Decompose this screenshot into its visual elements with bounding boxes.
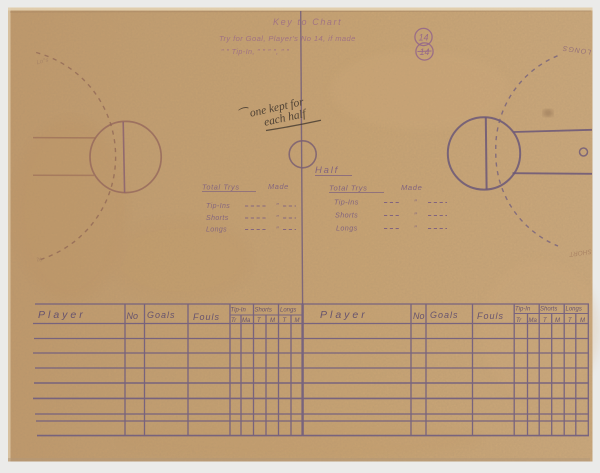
svg-text:14: 14	[418, 33, 428, 43]
svg-text:Player: Player	[38, 309, 86, 321]
svg-text:Shorts: Shorts	[255, 308, 272, 314]
svg-text:Ma: Ma	[242, 318, 251, 324]
svg-text:Try for Goal, Player's No 14: Try for Goal, Player's No 14, if made	[219, 34, 356, 43]
svg-text:M: M	[295, 318, 300, 324]
svg-text:M: M	[580, 318, 585, 324]
svg-text:Fouls: Fouls	[193, 312, 220, 322]
svg-text:M: M	[270, 318, 275, 324]
svg-text:Shorts: Shorts	[540, 307, 557, 313]
svg-text:Tip-Ins: Tip-Ins	[334, 198, 359, 207]
svg-text:Half: Half	[315, 165, 339, 176]
svg-text:Longs: Longs	[206, 227, 227, 234]
svg-text:Shorts: Shorts	[206, 215, 229, 222]
svg-text:Goals: Goals	[430, 310, 459, 320]
svg-text:Total Trys: Total Trys	[202, 183, 240, 192]
svg-text:Goals: Goals	[147, 310, 176, 320]
svg-text:M: M	[555, 318, 560, 324]
svg-text:Ma: Ma	[529, 318, 538, 324]
svg-text:Tip-In: Tip-In	[231, 308, 247, 314]
svg-text:Longs: Longs	[566, 307, 582, 313]
svg-text:Total Trys: Total Trys	[329, 184, 368, 193]
svg-text:Player: Player	[320, 309, 368, 321]
svg-text:Shorts: Shorts	[335, 211, 358, 220]
svg-text:Made: Made	[268, 182, 289, 191]
svg-text:Made: Made	[401, 183, 422, 192]
svg-text:Longs: Longs	[336, 224, 358, 233]
svg-text:14: 14	[419, 47, 429, 57]
svg-text:Fouls: Fouls	[477, 311, 504, 321]
svg-text:No: No	[127, 311, 139, 321]
svg-text:Longs: Longs	[280, 308, 296, 314]
svg-text:Key to Chart: Key to Chart	[273, 17, 342, 27]
svg-text:Tip-Ins: Tip-Ins	[206, 203, 230, 210]
svg-text:No: No	[413, 311, 425, 321]
svg-text:Tip-In: Tip-In	[515, 307, 531, 313]
svg-text:″ ″ Tip-In, ″: ″ ″ Tip-In, ″ ″ ″ ″, ″ ″	[221, 47, 289, 56]
